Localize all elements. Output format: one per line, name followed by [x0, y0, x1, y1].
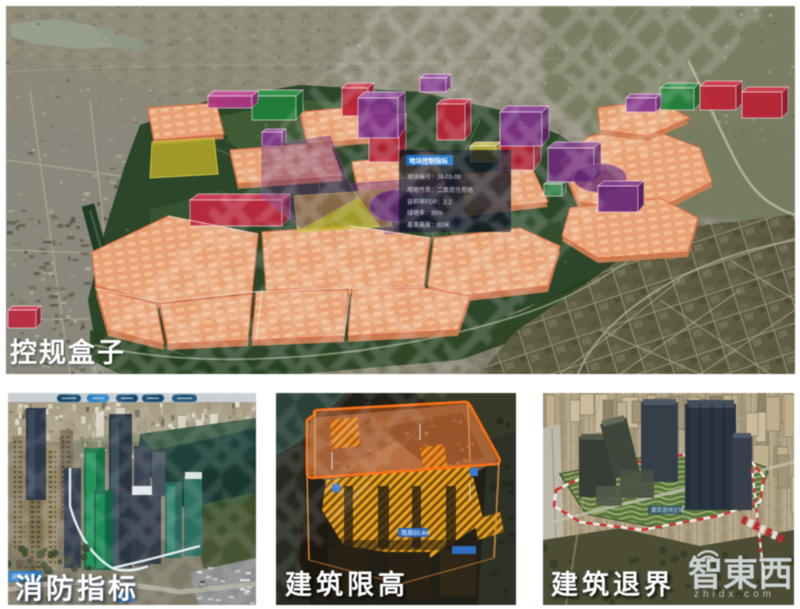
svg-text:建筑退界: 建筑退界 — [551, 569, 675, 600]
svg-text:建筑限高: 建筑限高 — [285, 569, 409, 600]
svg-text:zhidx.com: zhidx.com — [694, 589, 775, 600]
svg-text:限高50.4m: 限高50.4m — [401, 529, 430, 537]
svg-text:建筑退线区域: 建筑退线区域 — [651, 506, 685, 514]
